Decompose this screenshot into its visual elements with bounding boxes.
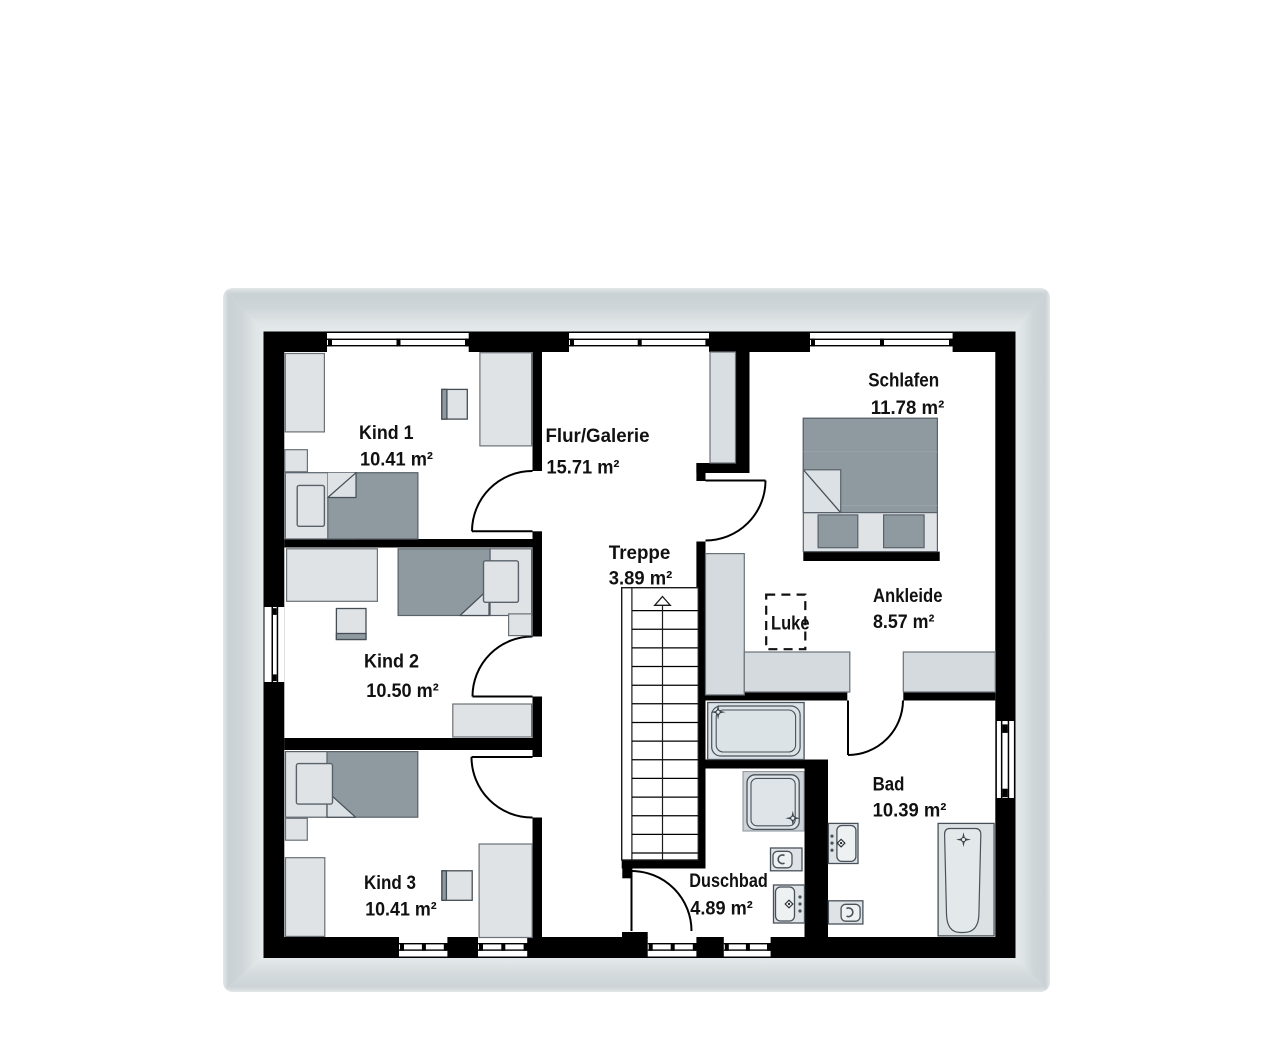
svg-text:11.78 m²: 11.78 m² bbox=[871, 398, 945, 419]
svg-text:Treppe: Treppe bbox=[609, 543, 671, 564]
svg-text:15.71 m²: 15.71 m² bbox=[547, 457, 620, 478]
svg-text:Ankleide: Ankleide bbox=[873, 586, 943, 607]
svg-text:Bad: Bad bbox=[873, 774, 905, 795]
svg-text:Kind 3: Kind 3 bbox=[364, 873, 416, 894]
svg-text:8.57 m²: 8.57 m² bbox=[873, 612, 935, 633]
svg-text:10.41 m²: 10.41 m² bbox=[365, 899, 437, 920]
svg-text:10.39 m²: 10.39 m² bbox=[873, 801, 947, 822]
svg-text:Schlafen: Schlafen bbox=[868, 370, 939, 391]
svg-text:Duschbad: Duschbad bbox=[689, 871, 768, 892]
svg-text:10.50 m²: 10.50 m² bbox=[366, 681, 439, 702]
svg-text:10.41 m²: 10.41 m² bbox=[360, 449, 433, 470]
svg-text:3.89 m²: 3.89 m² bbox=[609, 569, 673, 590]
svg-text:4.89 m²: 4.89 m² bbox=[690, 899, 753, 920]
svg-text:Luke: Luke bbox=[771, 613, 810, 635]
svg-text:Kind 1: Kind 1 bbox=[359, 423, 414, 444]
svg-text:Flur/Galerie: Flur/Galerie bbox=[546, 426, 650, 447]
svg-text:Kind 2: Kind 2 bbox=[364, 651, 419, 672]
